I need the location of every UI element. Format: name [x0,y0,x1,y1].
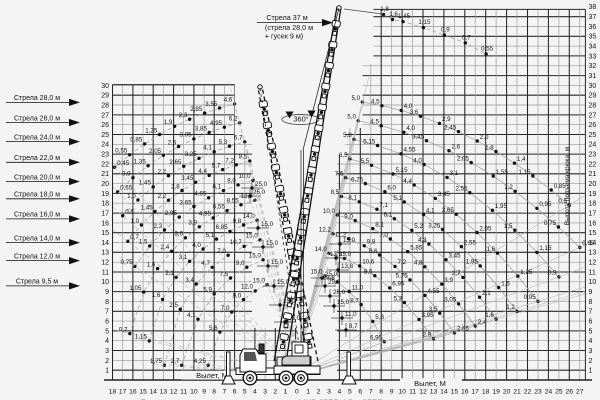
svg-text:27: 27 [576,388,584,395]
svg-text:9: 9 [105,289,109,296]
svg-text:3,1: 3,1 [179,254,188,261]
svg-text:2,9: 2,9 [423,332,432,339]
svg-text:8,55: 8,55 [227,198,240,205]
svg-text:5,0: 5,0 [347,114,356,121]
svg-text:24: 24 [589,142,597,149]
svg-text:22: 22 [589,161,597,168]
svg-text:2,45: 2,45 [444,124,457,131]
svg-text:3,25: 3,25 [428,222,441,229]
svg-text:15,0: 15,0 [261,221,274,228]
svg-text:8,5: 8,5 [239,154,248,161]
svg-text:4,6: 4,6 [224,97,233,104]
svg-text:29: 29 [101,93,109,100]
svg-text:1,9: 1,9 [164,119,173,126]
svg-text:25: 25 [101,132,109,139]
svg-text:0,9: 0,9 [122,171,131,178]
svg-text:15,0: 15,0 [266,240,279,247]
svg-text:23: 23 [101,152,109,159]
svg-text:35: 35 [589,34,597,41]
svg-text:13: 13 [101,250,109,257]
svg-text:6: 6 [233,388,237,395]
svg-text:5,8: 5,8 [375,314,384,321]
svg-text:3,9: 3,9 [188,220,197,227]
svg-text:4: 4 [105,338,109,345]
svg-text:3,55: 3,55 [205,101,218,108]
svg-text:4,4: 4,4 [403,178,412,185]
svg-text:9,0: 9,0 [344,213,353,220]
svg-text:9: 9 [589,289,593,296]
svg-text:2,7: 2,7 [171,358,180,365]
svg-text:3: 3 [327,388,331,395]
svg-text:5,7: 5,7 [212,162,221,169]
svg-text:2,05: 2,05 [479,225,492,232]
svg-text:0,95: 0,95 [524,294,537,301]
svg-text:1,05: 1,05 [129,285,142,292]
svg-text:25,0: 25,0 [325,271,338,278]
svg-text:6,95: 6,95 [370,335,383,342]
svg-text:0,85: 0,85 [554,183,567,190]
svg-text:22: 22 [101,161,109,168]
svg-text:2: 2 [273,388,277,395]
svg-text:13: 13 [589,250,597,257]
svg-text:5,3: 5,3 [219,139,228,146]
svg-text:6,7: 6,7 [234,135,243,142]
svg-text:4,5: 4,5 [371,99,380,106]
svg-text:3,85: 3,85 [195,125,208,132]
svg-text:2: 2 [317,388,321,395]
svg-text:1,15: 1,15 [519,169,532,176]
svg-text:37: 37 [589,14,597,21]
svg-text:2: 2 [105,358,109,365]
svg-text:4,0: 4,0 [192,242,201,249]
svg-text:9: 9 [202,388,206,395]
svg-text:1,0: 1,0 [130,218,139,225]
svg-text:2,6: 2,6 [452,144,461,151]
svg-text:5,6: 5,6 [209,325,218,332]
svg-text:6,1: 6,1 [383,212,392,219]
svg-text:7,2: 7,2 [225,158,234,165]
svg-text:3,0: 3,0 [174,231,183,238]
svg-text:0,45: 0,45 [117,160,130,167]
svg-text:24: 24 [545,388,553,395]
svg-text:23: 23 [534,388,542,395]
svg-text:13,8: 13,8 [341,263,354,270]
svg-text:1,8: 1,8 [485,144,494,151]
svg-text:5,3: 5,3 [393,295,402,302]
svg-text:8: 8 [212,388,216,395]
svg-text:4: 4 [253,388,257,395]
svg-text:28: 28 [589,102,597,109]
svg-text:6,75: 6,75 [351,176,364,183]
svg-text:1,6: 1,6 [485,312,494,319]
svg-text:7,5: 7,5 [220,271,229,278]
svg-text:20: 20 [101,181,109,188]
svg-text:12,2: 12,2 [319,227,332,234]
svg-text:3,45: 3,45 [449,253,462,260]
svg-text:Стрела 28,0 м: Стрела 28,0 м [14,95,60,102]
svg-text:5: 5 [589,328,593,335]
svg-text:3,25: 3,25 [185,151,198,158]
svg-text:0,9: 0,9 [441,27,450,34]
svg-text:7,0: 7,0 [217,248,226,255]
svg-text:8,6: 8,6 [369,248,378,255]
svg-text:14,0: 14,0 [315,246,328,253]
svg-text:10,0: 10,0 [323,208,336,215]
svg-text:6: 6 [589,319,593,326]
svg-text:10,0: 10,0 [239,173,252,180]
svg-text:1,6: 1,6 [152,292,161,299]
svg-text:11: 11 [589,269,596,276]
svg-text:5,15: 5,15 [396,167,409,174]
svg-text:1,75: 1,75 [150,358,163,365]
svg-text:1,25: 1,25 [520,269,533,276]
svg-text:12: 12 [170,388,178,395]
svg-text:1,2: 1,2 [506,304,515,311]
svg-text:11: 11 [102,269,109,276]
svg-text:1,15: 1,15 [418,19,431,26]
svg-text:2,5: 2,5 [169,302,178,309]
svg-text:0,85: 0,85 [130,137,143,144]
svg-text:27: 27 [589,112,597,119]
svg-text:4,3: 4,3 [418,237,427,244]
svg-text:15,0: 15,0 [339,251,352,258]
svg-text:Стрела 14,0 м: Стрела 14,0 м [14,235,60,242]
svg-text:25,0: 25,0 [255,181,268,188]
svg-text:2,85: 2,85 [190,106,203,113]
svg-text:8: 8 [379,388,383,395]
svg-text:1,2: 1,2 [504,184,513,191]
svg-text:0: 0 [295,388,299,395]
svg-text:4,5: 4,5 [370,119,379,126]
svg-text:26: 26 [566,388,574,395]
svg-text:34: 34 [589,44,597,51]
svg-text:5: 5 [348,388,352,395]
svg-text:2,2: 2,2 [158,193,167,200]
svg-text:+ гусек 9 м): + гусек 9 м) [265,32,303,41]
svg-text:10: 10 [101,279,109,286]
svg-text:0,9: 0,9 [548,270,557,277]
svg-text:25: 25 [555,388,563,395]
svg-text:1,5: 1,5 [139,239,148,246]
svg-text:25,0: 25,0 [328,279,341,286]
svg-text:6,2: 6,2 [229,116,238,123]
svg-text:5: 5 [243,388,247,395]
svg-text:9,0: 9,0 [236,260,245,267]
svg-text:5,9: 5,9 [203,287,212,294]
svg-text:8,7: 8,7 [349,323,358,330]
svg-text:26: 26 [101,122,109,129]
svg-text:8,0: 8,0 [227,178,236,185]
svg-text:7: 7 [223,388,227,395]
svg-text:15,0: 15,0 [271,259,284,266]
svg-text:2,65: 2,65 [442,207,455,214]
svg-text:0,65: 0,65 [582,240,595,247]
svg-text:6,95: 6,95 [392,281,405,288]
svg-text:13: 13 [430,388,438,395]
svg-text:1,6: 1,6 [487,246,496,253]
svg-text:16: 16 [101,220,109,227]
svg-text:2,1: 2,1 [165,270,174,277]
svg-text:1,5: 1,5 [501,280,510,287]
svg-text:18: 18 [109,388,117,395]
svg-text:1,95: 1,95 [495,203,508,210]
svg-text:4,7: 4,7 [201,260,210,267]
svg-text:2,1: 2,1 [482,290,491,297]
svg-text:7,0: 7,0 [221,305,230,312]
svg-text:15,0: 15,0 [246,233,259,240]
svg-text:Вылет, М: Вылет, М [196,371,228,380]
svg-text:Стрела 18,0 м: Стрела 18,0 м [14,192,60,199]
svg-text:1,5: 1,5 [504,223,513,230]
svg-text:17: 17 [471,388,479,395]
svg-text:4,0: 4,0 [406,125,415,132]
svg-text:8,7: 8,7 [350,297,359,304]
svg-text:11: 11 [409,388,416,395]
svg-text:6: 6 [105,319,109,326]
svg-text:7,1: 7,1 [379,202,388,209]
svg-text:4,95: 4,95 [210,120,223,127]
svg-text:4,1: 4,1 [187,312,196,319]
svg-text:2,55: 2,55 [464,239,477,246]
svg-text:1,8: 1,8 [380,6,389,13]
svg-text:2,7: 2,7 [452,270,461,277]
svg-text:2,05: 2,05 [457,155,470,162]
svg-text:21: 21 [101,171,109,178]
svg-text:22: 22 [524,388,532,395]
svg-text:1,55: 1,55 [496,169,509,176]
svg-text:Стрела 26,0 м: Стрела 26,0 м [14,115,60,122]
svg-text:3,05: 3,05 [444,297,457,304]
svg-text:0,6: 0,6 [125,209,134,216]
svg-text:8: 8 [105,299,109,306]
svg-text:1,0: 1,0 [127,193,136,200]
svg-text:3,4: 3,4 [185,277,194,284]
svg-text:3,45: 3,45 [412,134,425,141]
svg-text:8,5: 8,5 [331,189,340,196]
svg-text:9,0: 9,0 [233,292,242,299]
svg-text:15,0: 15,0 [310,269,323,276]
svg-text:1,45: 1,45 [141,204,154,211]
svg-text:6,0: 6,0 [387,185,396,192]
svg-text:5,75: 5,75 [396,273,409,280]
svg-text:20: 20 [589,181,597,188]
svg-text:12: 12 [589,260,597,267]
svg-text:17: 17 [101,211,109,218]
svg-text:5,15: 5,15 [363,138,376,145]
svg-text:2,8: 2,8 [171,183,180,190]
svg-text:1,45: 1,45 [398,13,411,20]
svg-text:2,4: 2,4 [161,244,170,251]
svg-text:0,55: 0,55 [115,148,128,155]
svg-text:2,3: 2,3 [179,112,188,119]
svg-text:32: 32 [589,63,597,70]
svg-text:21: 21 [513,388,521,395]
svg-text:4,1: 4,1 [203,145,212,152]
svg-text:2: 2 [589,358,593,365]
svg-text:8,6: 8,6 [364,269,373,276]
svg-text:2,95: 2,95 [165,210,178,217]
svg-text:12: 12 [419,388,427,395]
svg-text:1,4: 1,4 [517,156,526,163]
svg-text:18: 18 [589,201,597,208]
svg-text:Вылет, М: Вылет, М [414,379,446,388]
svg-text:360°: 360° [293,115,308,124]
svg-text:1,6: 1,6 [147,261,156,268]
svg-text:15: 15 [589,230,597,237]
svg-text:7,0: 7,0 [379,232,388,239]
svg-text:30: 30 [589,83,597,90]
svg-text:15,0: 15,0 [249,253,262,260]
svg-text:1: 1 [284,388,288,395]
svg-text:11,0: 11,0 [345,311,357,318]
svg-text:3: 3 [105,348,109,355]
svg-text:31: 31 [589,73,597,80]
svg-text:4: 4 [338,388,342,395]
svg-text:10: 10 [589,279,597,286]
svg-text:15: 15 [451,388,459,395]
svg-text:3: 3 [263,388,267,395]
svg-text:17: 17 [589,211,597,218]
svg-text:10,7: 10,7 [230,239,243,246]
svg-text:14: 14 [149,388,157,395]
svg-text:2,9: 2,9 [442,116,451,123]
svg-text:0,7: 0,7 [119,326,128,333]
svg-text:1: 1 [105,368,109,375]
svg-text:8: 8 [589,299,593,306]
svg-text:Стрела 20,0 м: Стрела 20,0 м [14,174,60,181]
svg-text:14,0: 14,0 [243,213,256,220]
svg-text:19: 19 [492,388,500,395]
svg-text:20: 20 [503,388,511,395]
svg-text:4,65: 4,65 [194,191,207,198]
svg-text:27: 27 [101,112,109,119]
svg-text:6,55: 6,55 [213,203,226,210]
svg-text:0,65: 0,65 [120,185,133,192]
svg-text:1,25: 1,25 [145,127,158,134]
svg-text:3,6: 3,6 [410,109,419,116]
svg-text:17: 17 [119,388,127,395]
svg-text:15,0: 15,0 [253,278,266,285]
svg-text:6,85: 6,85 [216,224,229,231]
svg-text:14: 14 [440,388,448,395]
svg-text:25,0: 25,0 [253,189,266,196]
svg-text:10: 10 [398,388,406,395]
svg-text:10,6: 10,6 [362,259,375,266]
svg-text:5,1: 5,1 [206,232,215,239]
svg-text:6,1: 6,1 [212,183,221,190]
svg-text:7: 7 [589,309,593,316]
svg-text:4,55: 4,55 [428,288,441,295]
svg-text:6,5: 6,5 [339,152,348,159]
svg-text:19: 19 [589,191,597,198]
svg-text:0,95: 0,95 [539,201,552,208]
svg-text:4,95: 4,95 [199,211,212,218]
svg-text:1,6: 1,6 [389,11,398,18]
svg-text:16: 16 [589,220,597,227]
svg-text:2,2: 2,2 [158,169,167,176]
svg-text:33: 33 [589,53,597,60]
svg-text:4,1: 4,1 [426,207,435,214]
svg-text:1,15: 1,15 [539,245,552,252]
svg-text:2,55: 2,55 [455,186,468,193]
svg-text:4: 4 [589,338,593,345]
svg-text:3,65: 3,65 [180,199,193,206]
svg-text:12: 12 [101,260,109,267]
svg-text:18: 18 [101,201,109,208]
svg-text:2,05: 2,05 [149,148,162,155]
svg-text:11: 11 [180,388,187,395]
svg-text:2,0: 2,0 [480,134,489,141]
svg-text:2,3: 2,3 [153,223,162,230]
svg-text:Стрела 16,0 м: Стрела 16,0 м [14,212,60,219]
svg-text:15: 15 [101,230,109,237]
svg-text:7,2: 7,2 [398,259,407,266]
svg-text:0,5: 0,5 [558,198,567,205]
svg-text:30: 30 [101,83,109,90]
svg-text:3,9: 3,9 [444,277,453,284]
svg-text:19: 19 [101,191,109,198]
svg-text:23: 23 [589,152,597,159]
svg-text:4,4: 4,4 [198,168,207,175]
svg-text:20,0: 20,0 [333,289,346,296]
svg-text:Стрела 22,0 м: Стрела 22,0 м [14,155,60,162]
svg-text:4,8: 4,8 [414,260,423,267]
svg-text:5,8: 5,8 [343,132,352,139]
svg-text:9,8: 9,8 [367,239,376,246]
svg-text:5,0: 5,0 [351,95,360,102]
svg-text:36: 36 [589,24,597,31]
svg-text:5,85: 5,85 [410,244,423,251]
svg-text:7,5: 7,5 [335,171,344,178]
svg-text:4,0: 4,0 [413,157,422,164]
svg-text:0,75: 0,75 [121,259,134,266]
svg-text:0,55: 0,55 [481,46,494,53]
svg-text:Стрела 24,0 м: Стрела 24,0 м [14,134,60,141]
svg-text:25: 25 [589,132,597,139]
svg-text:11,0: 11,0 [352,284,364,291]
svg-text:5: 5 [105,328,109,335]
svg-text:3,95: 3,95 [422,312,435,319]
svg-text:26: 26 [589,122,597,129]
svg-text:Стрела 9,5 м: Стрела 9,5 м [16,279,58,286]
svg-text:24: 24 [101,142,109,149]
svg-text:4,55: 4,55 [404,147,417,154]
svg-text:12,0: 12,0 [241,284,254,291]
svg-text:0,7: 0,7 [462,35,471,42]
svg-text:15,0: 15,0 [343,237,356,244]
svg-text:3,45: 3,45 [438,191,451,198]
svg-text:13: 13 [160,388,168,395]
svg-text:38: 38 [589,4,597,11]
svg-text:18: 18 [482,388,490,395]
svg-text:21: 21 [589,171,597,178]
svg-text:16: 16 [461,388,469,395]
svg-text:28: 28 [101,102,109,109]
svg-text:29: 29 [589,93,597,100]
svg-text:7: 7 [369,388,373,395]
svg-text:1,15: 1,15 [135,334,148,341]
svg-text:3: 3 [589,348,593,355]
svg-text:1,45: 1,45 [139,180,152,187]
svg-text:3,05: 3,05 [180,132,193,139]
svg-text:2,5: 2,5 [168,139,177,146]
svg-text:10: 10 [190,388,198,395]
svg-text:1: 1 [589,368,593,375]
svg-text:5,5: 5,5 [361,158,370,165]
svg-text:Стрела 37 м: Стрела 37 м [266,13,307,22]
svg-text:8,1: 8,1 [348,195,357,202]
svg-text:3,1: 3,1 [450,170,459,177]
